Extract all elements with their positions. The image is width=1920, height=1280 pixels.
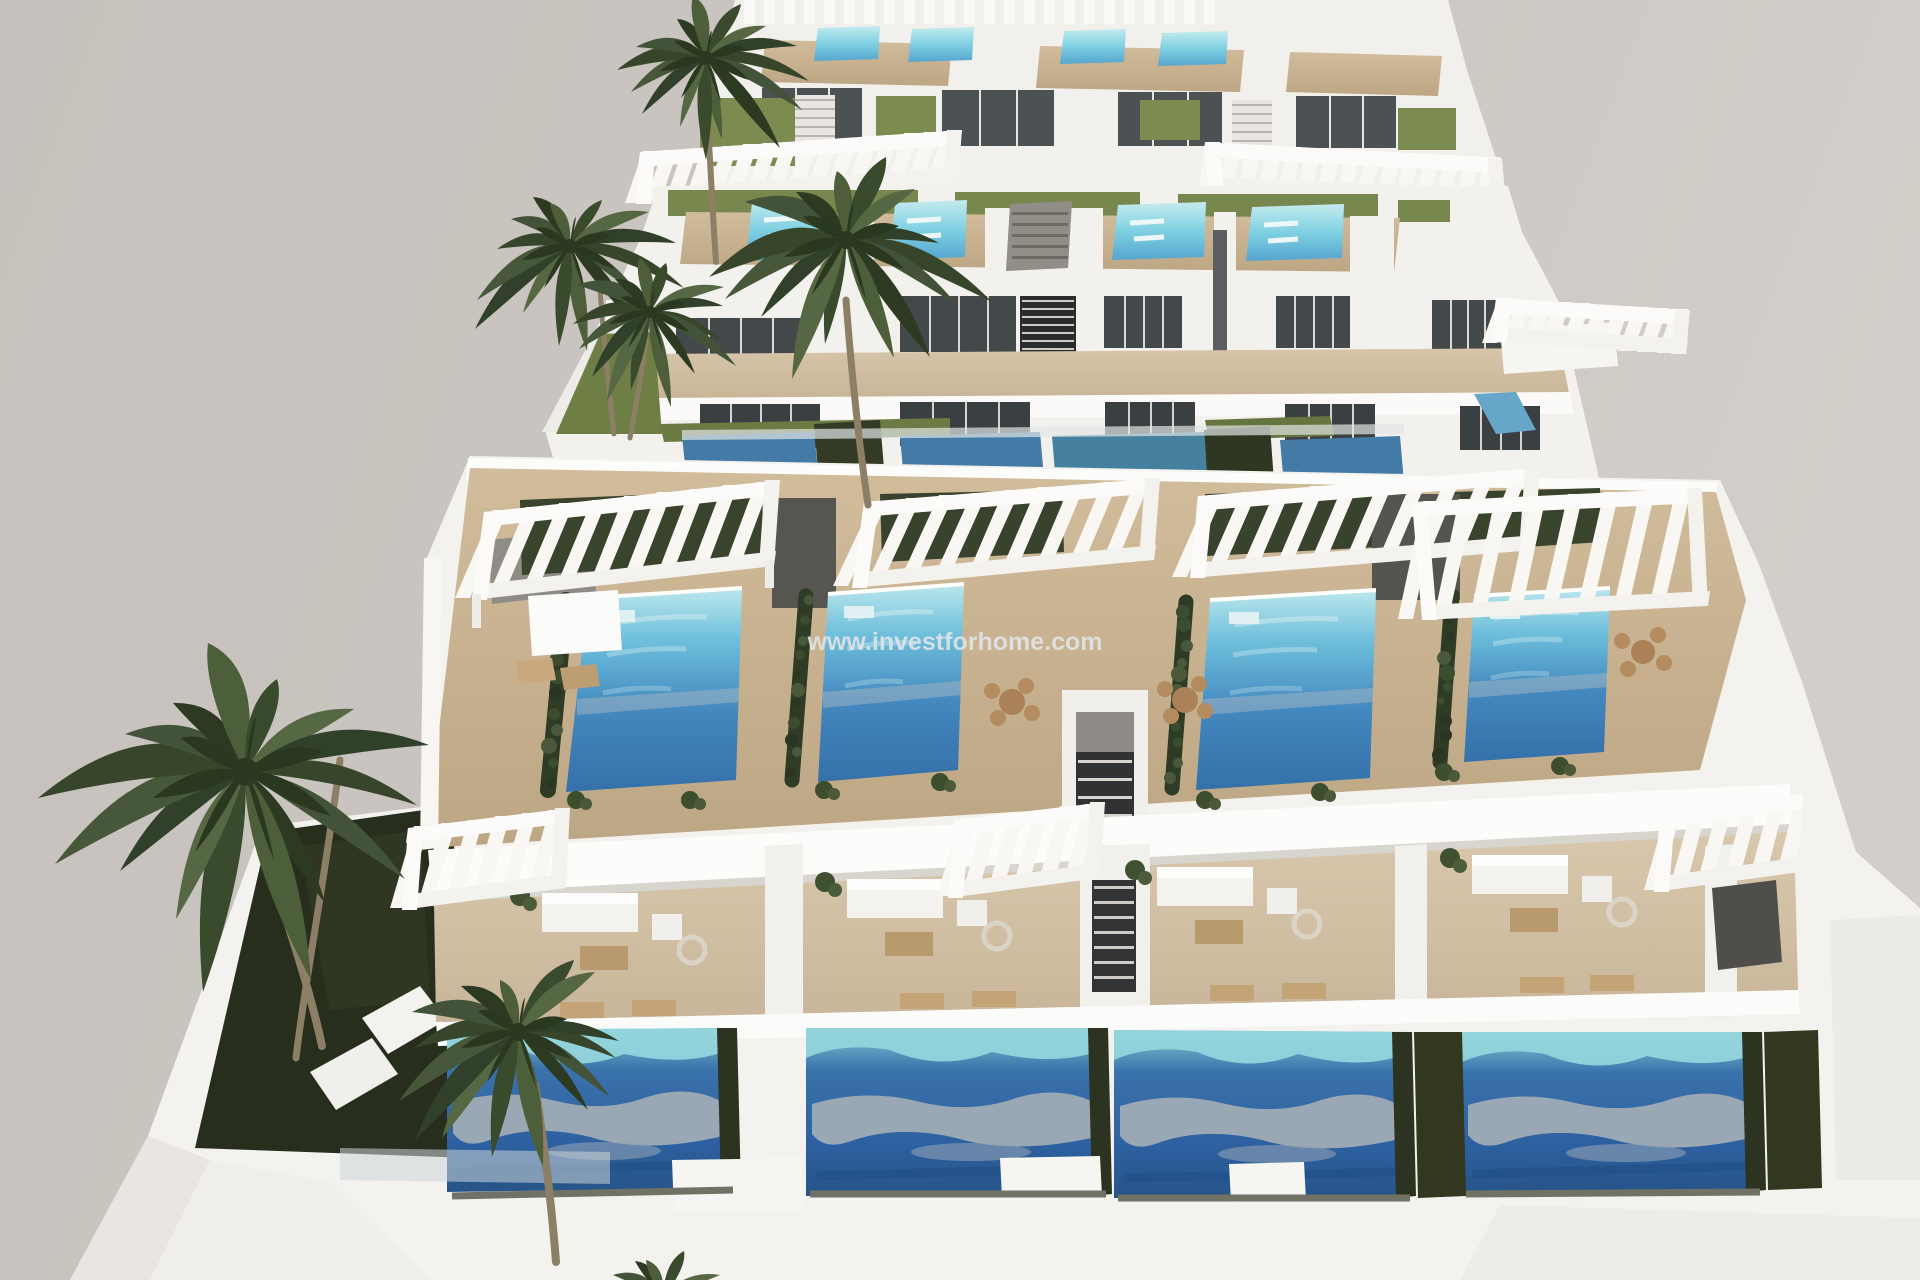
svg-text:www.investforhome.com: www.investforhome.com — [807, 628, 1103, 656]
